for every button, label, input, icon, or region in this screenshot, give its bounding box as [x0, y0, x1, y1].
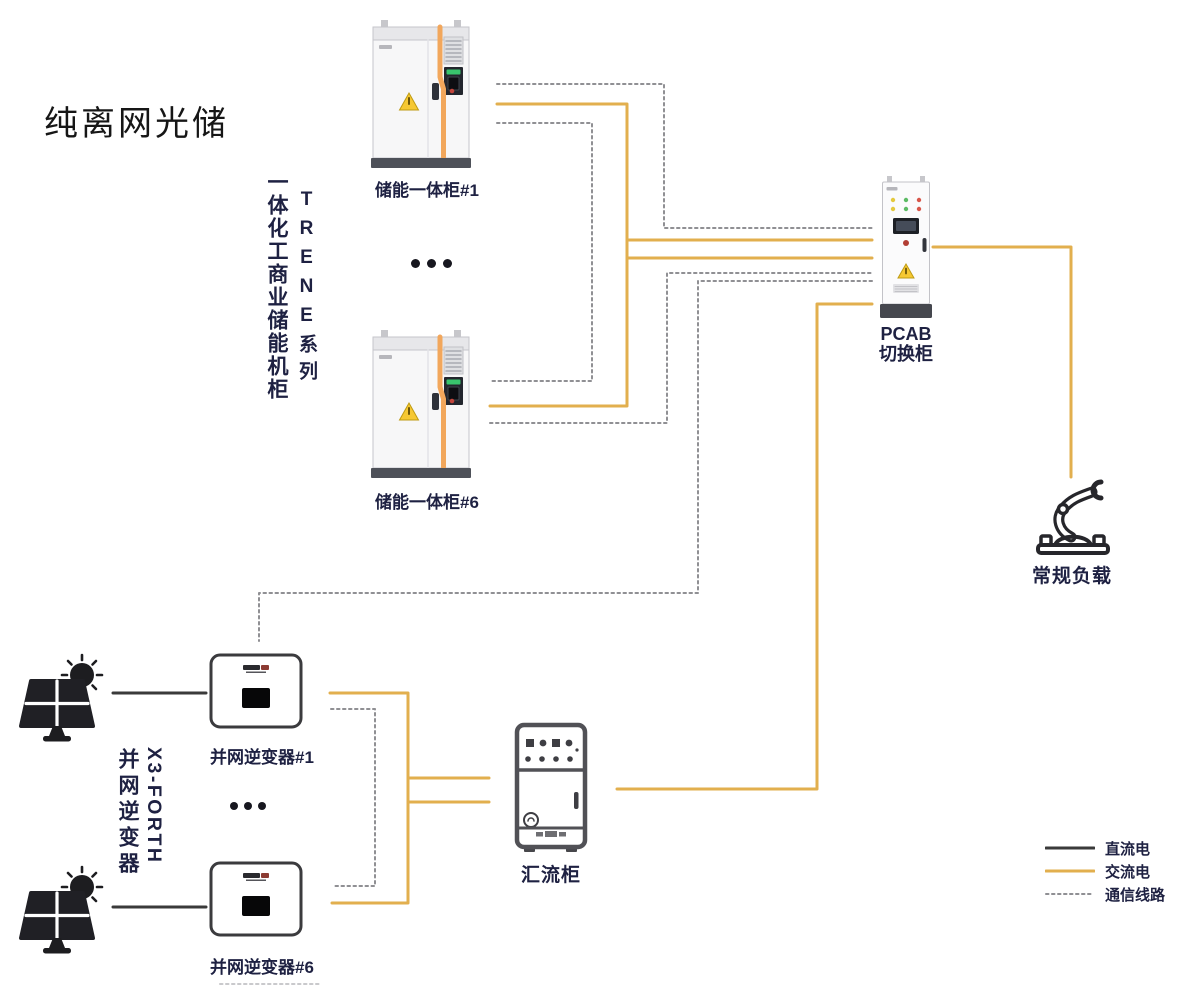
pv-group-label-model: X3-FORTH — [142, 747, 165, 865]
storage-cabinet-icon — [371, 20, 471, 168]
storage-group-label-series: TRENE系列 — [293, 189, 320, 388]
legend-comm-row: 通信线路 — [1045, 886, 1165, 902]
storage-cabinet-1-label: 储能一体柜#1 — [352, 176, 502, 201]
dot — [244, 802, 252, 810]
inverter-1 — [208, 652, 304, 732]
legend-dc-label: 直流电 — [1105, 838, 1150, 859]
comm-inv1-inv6 — [331, 709, 375, 886]
regular-load — [1030, 476, 1116, 560]
storage-cabinet-1 — [371, 20, 471, 168]
legend-ac-label: 交流电 — [1105, 861, 1150, 882]
regular-load-label: 常规负载 — [997, 561, 1147, 588]
solar-panel-icon — [16, 862, 112, 958]
wire-layer — [0, 0, 1200, 1000]
comm-cab1-pcab — [497, 84, 872, 228]
pcab-cabinet-icon — [880, 176, 932, 318]
comm-pcab-inverters — [259, 281, 872, 641]
dot — [427, 259, 436, 268]
legend-ac-row: 交流电 — [1045, 863, 1165, 879]
storage-group-label-cn: 一体化工商业储能机柜 — [261, 171, 291, 401]
combiner-cabinet — [511, 722, 591, 854]
combiner-cabinet-icon — [511, 722, 591, 854]
dot — [258, 802, 266, 810]
inverter-icon — [208, 860, 304, 940]
dc-line-sample — [1045, 845, 1095, 851]
ac-trunk-inverters — [330, 693, 408, 903]
solar-panel-2 — [16, 862, 112, 958]
legend: 直流电 交流电 通信线路 — [1045, 840, 1165, 902]
inverter-icon — [208, 652, 304, 732]
pcab-label-line1: PCAB — [845, 324, 967, 344]
ac-line-sample — [1045, 868, 1095, 874]
pv-group-label-cn: 并网逆变器 — [112, 748, 142, 878]
storage-cabinet-6-label: 储能一体柜#6 — [352, 488, 502, 513]
pcab-label-line2: 切换柜 — [845, 344, 967, 364]
storage-ellipsis-dots — [411, 259, 459, 268]
dot — [230, 802, 238, 810]
dot — [411, 259, 420, 268]
dot — [443, 259, 452, 268]
solar-panel-1 — [16, 650, 112, 746]
pcab-label: PCAB 切换柜 — [845, 324, 967, 364]
storage-cabinet-6 — [371, 330, 471, 478]
storage-cabinet-icon — [371, 330, 471, 478]
pcab-cabinet — [880, 176, 932, 318]
ac-trunk-cabinets — [490, 104, 627, 406]
comm-line-sample — [1045, 891, 1095, 897]
legend-comm-label: 通信线路 — [1105, 884, 1165, 905]
combiner-cabinet-label: 汇流柜 — [481, 860, 621, 887]
comm-cab1-cab6 — [490, 123, 592, 381]
ac-combiner-to-pcab — [617, 304, 872, 789]
inverter-1-label: 并网逆变器#1 — [187, 743, 337, 768]
inverter-6-label: 并网逆变器#6 — [187, 953, 337, 978]
robot-arm-icon — [1030, 476, 1116, 560]
comm-cab6-pcab — [490, 273, 872, 423]
inverter-ellipsis-dots — [230, 802, 272, 810]
inverter-6 — [208, 860, 304, 940]
offgrid-pv-storage-diagram: 纯离网光储 一体化工商业储能机柜 TRENE系列 并网逆变器 X3-FORTH … — [0, 0, 1200, 1000]
solar-panel-icon — [16, 650, 112, 746]
page-title: 纯离网光储 — [44, 96, 229, 145]
legend-dc-row: 直流电 — [1045, 840, 1165, 856]
